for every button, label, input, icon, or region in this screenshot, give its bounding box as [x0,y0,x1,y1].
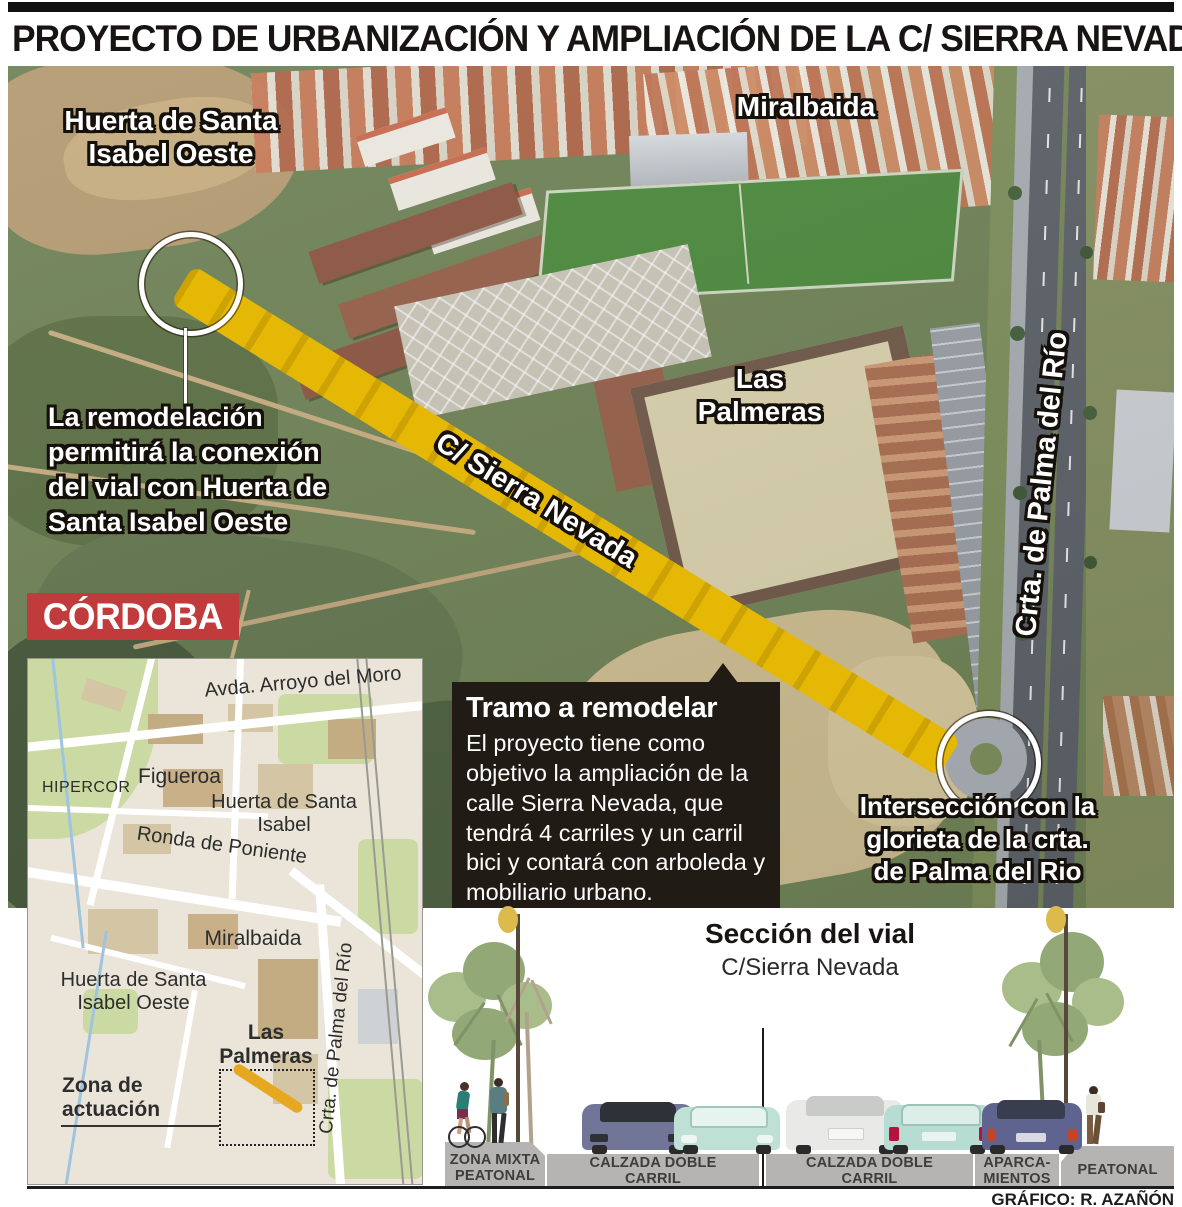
map-label-miralbaida: Miralbaida [178,927,328,951]
callout-tramo: Tramo a remodelar El proyecto tiene como… [452,682,780,908]
streetlight-lamp [1046,906,1066,933]
label-huerta-oeste: Huerta de Santa Isabel Oeste [36,104,306,170]
zone-label: APARCA-MIENTOS [979,1155,1055,1187]
ground-line [27,1186,1174,1189]
streetlight-lamp [498,906,518,933]
zone-label: CALZADA DOBLE CARRIL [573,1155,733,1187]
car-rear-teal-icon [884,1102,994,1154]
map-zona-leader [61,1125,219,1127]
map-label-figueroa: Figueroa [138,765,221,789]
header-bar [8,2,1174,12]
credit: GRÁFICO: R. AZAÑÓN [890,1190,1174,1207]
walking-woman-icon [1081,1086,1107,1148]
callout-body: El proyecto tiene como objetivo la ampli… [466,729,766,908]
map-label-huerta-oeste: Huerta de Santa Isabel Oeste [56,969,211,1015]
zone-label: CALZADA DOBLE CARRIL [790,1155,950,1187]
zone-calzada-1: CALZADA DOBLE CARRIL [547,1154,759,1188]
map-label-zona: Zona de actuación [62,1074,197,1122]
section-subtitle: C/Sierra Nevada [610,954,1010,982]
label-miralbaida: Miralbaida [696,90,916,123]
annotation-remodelacion: La remodelación permitirá la conexión de… [48,400,328,540]
label-las-palmeras: Las Palmeras [670,362,850,428]
circle-marker-west [139,232,243,336]
zone-label: ZONA MIXTA PEATONAL [449,1152,541,1184]
callout-title: Tramo a remodelar [466,692,766,725]
page-title: PROYECTO DE URBANIZACIÓN Y AMPLIACIÓN DE… [12,18,1129,60]
infographic: PROYECTO DE URBANIZACIÓN Y AMPLIACIÓN DE… [0,0,1182,1207]
map-label-las-palmeras: Las Palmeras [206,1021,326,1069]
car-rear-parked-icon [982,1098,1082,1154]
leader-line [184,328,187,406]
pedestrian-icon [486,1078,512,1146]
inset-map: Avda. Arroyo del Moro HIPERCOR Figueroa … [27,658,423,1185]
map-label-hipercor: HIPERCOR [42,779,130,797]
car-front-mint-icon [674,1104,780,1154]
zone-calzada-2: CALZADA DOBLE CARRIL [766,1154,973,1188]
zone-zona-mixta: ZONA MIXTA PEATONAL [445,1142,545,1188]
brand-cordoba: CÓRDOBA [27,593,239,640]
zone-aparcamientos: APARCA-MIENTOS [975,1154,1059,1188]
annotation-interseccion: Intersección con la glorieta de la crta.… [850,790,1105,888]
streetlight-pole [516,914,520,1144]
brand-label: CÓRDOBA [43,596,223,638]
section-title: Sección del vial [610,918,1010,950]
zone-label: PEATONAL [1068,1162,1168,1178]
map-label-huerta: Huerta de Santa Isabel [208,791,360,837]
bare-tree-trunk [525,1012,534,1144]
callout-pointer [708,663,738,683]
cyclist-icon [448,1082,484,1146]
